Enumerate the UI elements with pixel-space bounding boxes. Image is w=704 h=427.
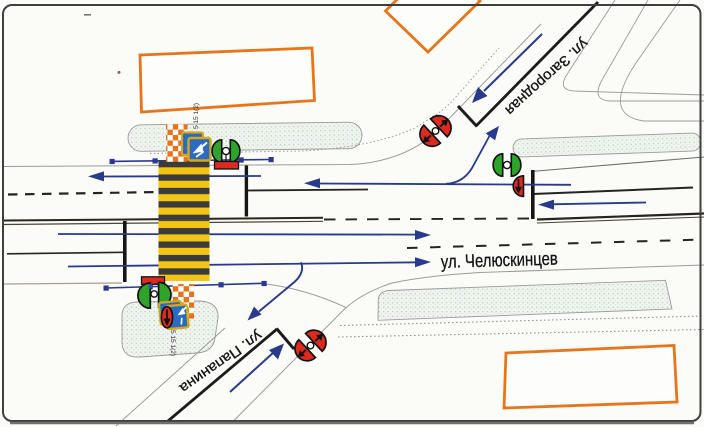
- svg-text:5 15 1(2): 5 15 1(2): [193, 103, 200, 129]
- svg-text:ул. Челюскинцев: ул. Челюскинцев: [440, 248, 558, 272]
- svg-text:5 15 1(2): 5 15 1(2): [169, 330, 176, 356]
